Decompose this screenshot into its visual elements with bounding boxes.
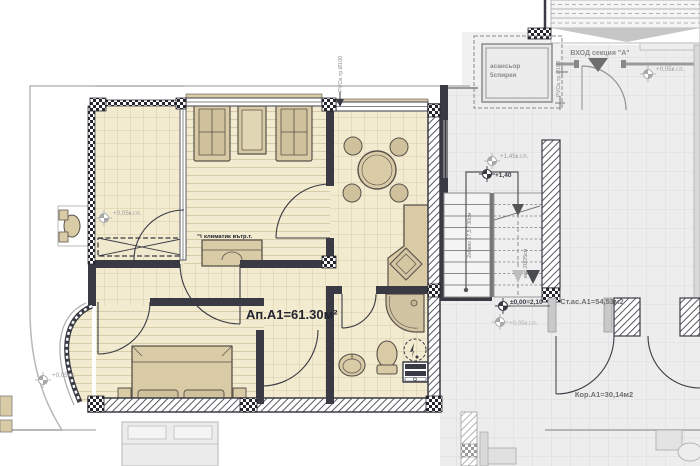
apartment-area-label: Ап.А1=61.30м² <box>246 307 338 322</box>
balcony-floor <box>67 306 92 402</box>
column <box>240 398 257 412</box>
outdoor-table <box>58 206 88 246</box>
wardrobe-box <box>98 238 186 256</box>
railing <box>106 100 176 106</box>
riser-pipe-label: PVCв.тр.Ø100 <box>556 61 562 97</box>
staircase-area-label: Ст.ас.А1=54,53м2 <box>560 297 623 306</box>
sink <box>339 354 365 376</box>
elevator-label: асансьор <box>490 63 520 70</box>
wall <box>542 140 560 288</box>
level-marker-label: +1,45к.г.п. <box>500 153 529 160</box>
riser-pipe-label: PVCв.тр.Ø100 <box>338 56 344 92</box>
column <box>322 256 336 268</box>
level-marker-label: +0,05к.г. <box>52 372 76 379</box>
railing <box>88 106 95 264</box>
sofa-left <box>194 103 230 161</box>
sofa-right <box>276 103 312 161</box>
column <box>428 104 440 117</box>
electrical-panel <box>403 362 428 382</box>
wall <box>88 260 96 306</box>
column <box>176 98 186 109</box>
toilet <box>377 341 397 374</box>
level-marker-label: ±0,00=2,10 <box>510 299 543 306</box>
column <box>428 284 440 297</box>
elevator-label: 5спирки <box>490 72 516 79</box>
level-marker-label: +1,40 <box>495 172 512 179</box>
column <box>90 98 106 111</box>
column <box>426 396 442 412</box>
bed <box>118 346 246 404</box>
corridor-area-label: Кор.А1=30,14м2 <box>575 390 633 399</box>
column <box>528 28 551 39</box>
wall <box>428 104 440 404</box>
floor-plan-drawing: 2х8вис 17,5 / 30см вис.20/25см асансьор … <box>0 0 700 466</box>
column <box>88 396 104 412</box>
column <box>322 98 336 111</box>
entrance-steps <box>528 0 700 50</box>
level-marker-label: +0,05к.г.п. <box>509 320 538 327</box>
coffee-table <box>238 106 266 154</box>
stairs-dimension-label: вис.20/25см <box>523 248 529 278</box>
floor-plan: 2х8вис 17,5 / 30см вис.20/25см асансьор … <box>0 0 700 466</box>
ac-unit-label: климатик вътр.т. <box>204 234 253 240</box>
level-marker-label: +0,05к.г.п. <box>656 66 685 73</box>
level-marker-label: +0,05к.г.п. <box>113 210 142 217</box>
column <box>680 298 700 336</box>
stairs-dimension-label: 2х8вис 17,5 / 30см <box>467 212 473 258</box>
entrance-label: ВХОД секция "А" <box>570 50 629 57</box>
